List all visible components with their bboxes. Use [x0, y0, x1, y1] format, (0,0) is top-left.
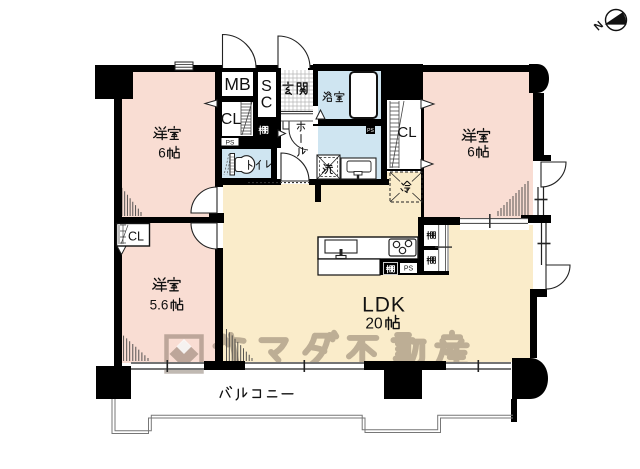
svg-text:6: 6	[158, 146, 166, 161]
svg-text:20: 20	[365, 316, 383, 333]
svg-text:5.6: 5.6	[150, 298, 169, 313]
svg-text:PS: PS	[367, 128, 374, 134]
svg-text:S: S	[261, 78, 272, 95]
svg-text:PS: PS	[226, 140, 235, 147]
svg-text:C: C	[261, 95, 273, 112]
svg-text:PS: PS	[404, 266, 414, 273]
svg-text:CL: CL	[397, 124, 416, 141]
svg-text:CL: CL	[221, 111, 242, 128]
svg-text:MB: MB	[224, 74, 250, 94]
svg-text:6: 6	[467, 145, 475, 160]
svg-text:LDK: LDK	[362, 294, 406, 317]
svg-text:CL: CL	[128, 230, 144, 244]
